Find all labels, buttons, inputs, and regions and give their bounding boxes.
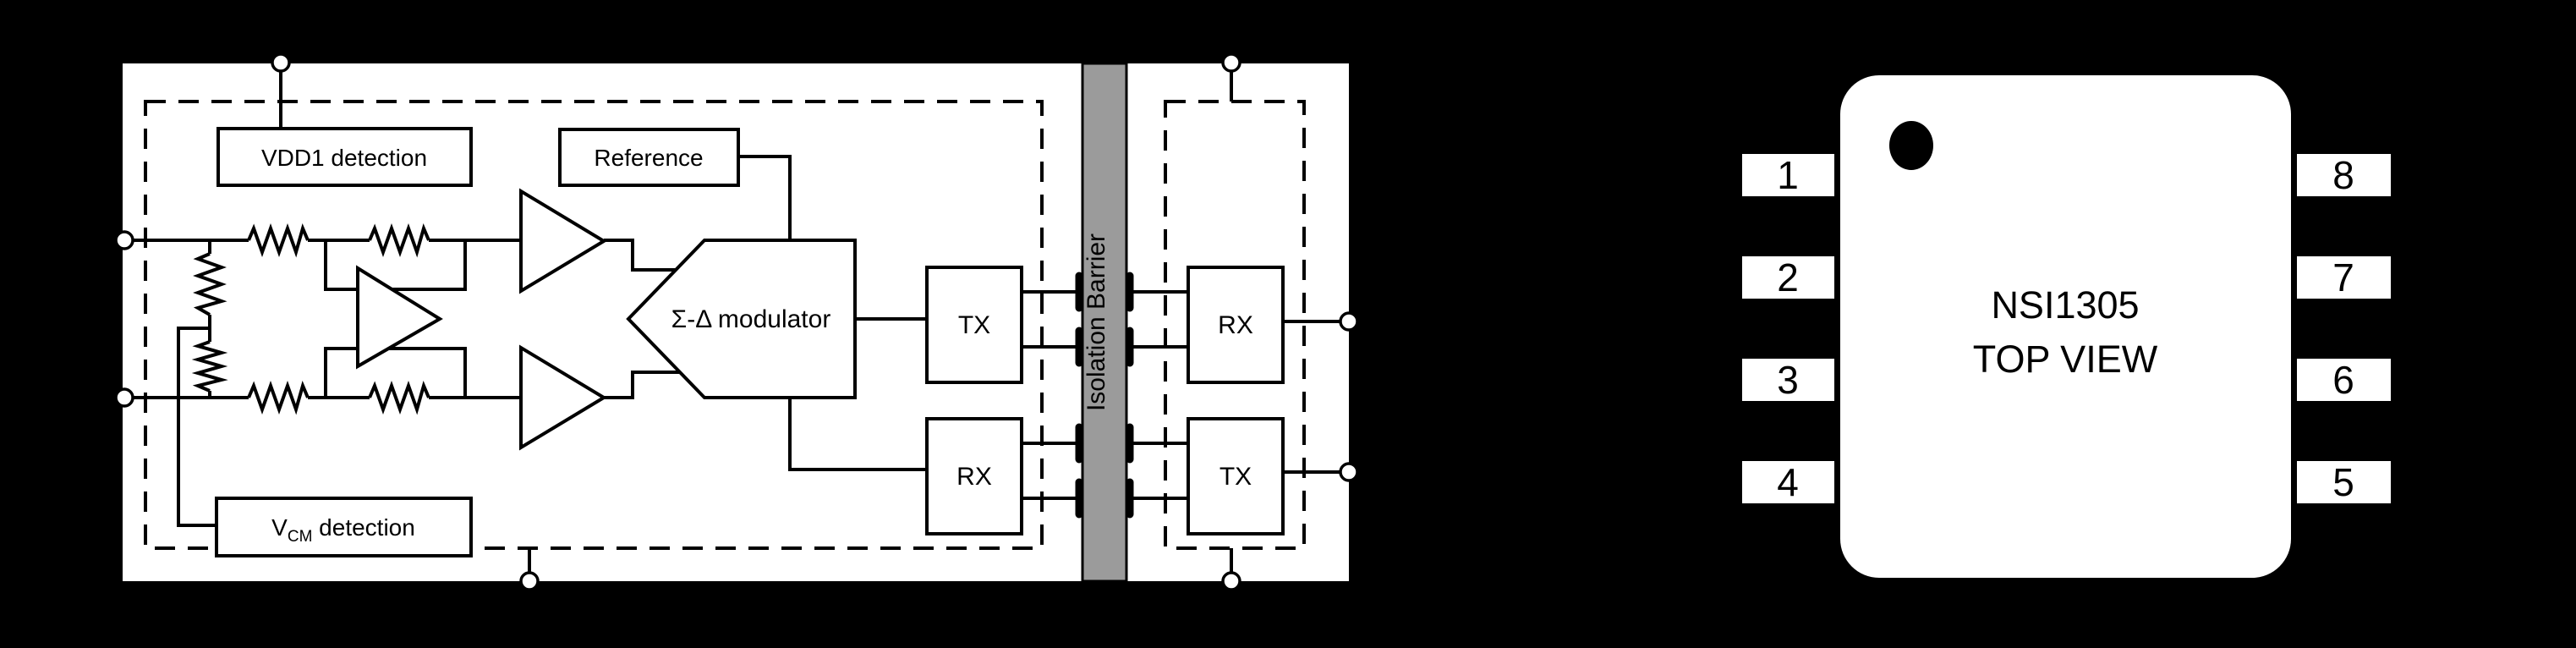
pin1-indicator-dot — [1889, 121, 1933, 170]
figure-canvas: VDD1 detection Reference VCM detection Σ… — [0, 0, 2576, 648]
pin-label-3: 3 — [1777, 358, 1799, 402]
tx-right-label: TX — [1219, 463, 1252, 491]
pin-label-7: 7 — [2332, 255, 2354, 299]
pin-label-1: 1 — [1777, 153, 1799, 197]
terminal-bottom-left — [521, 573, 538, 590]
reference-label: Reference — [594, 145, 703, 171]
terminal-output-top — [1340, 313, 1357, 330]
terminal-input-negative — [116, 389, 133, 406]
pin-label-4: 4 — [1777, 460, 1799, 504]
rx-right-label: RX — [1218, 311, 1253, 339]
terminal-output-bottom — [1340, 464, 1357, 481]
terminal-input-positive — [116, 232, 133, 249]
terminal-top-right — [1223, 54, 1240, 71]
chip-pins-right: 8 7 6 5 — [2297, 153, 2391, 504]
isolation-barrier-label: Isolation Barrier — [1082, 233, 1110, 411]
pin-label-6: 6 — [2332, 358, 2354, 402]
vdd1-detection-label: VDD1 detection — [261, 145, 427, 171]
terminal-top-left — [272, 54, 289, 71]
pin-label-8: 8 — [2332, 153, 2354, 197]
chip-pins-left: 1 2 3 4 — [1742, 153, 1834, 504]
pin-label-2: 2 — [1777, 255, 1799, 299]
tx-left-label: TX — [958, 311, 990, 339]
pin-label-5: 5 — [2332, 460, 2354, 504]
sigma-delta-modulator-label: Σ-Δ modulator — [671, 305, 831, 333]
isolation-barrier: Isolation Barrier — [1079, 63, 1130, 581]
chip-part-number: NSI1305 — [1991, 283, 2139, 327]
diagram-svg: VDD1 detection Reference VCM detection Σ… — [0, 0, 2576, 648]
vcm-rest: detection — [312, 514, 414, 541]
rx-left-label: RX — [956, 463, 992, 491]
vcm-v: V — [271, 514, 288, 541]
terminal-bottom-right — [1223, 573, 1240, 590]
chip-package: NSI1305 TOP VIEW 1 2 3 4 8 7 6 5 — [1742, 75, 2391, 578]
vcm-sub: CM — [288, 528, 313, 546]
chip-view-label: TOP VIEW — [1973, 338, 2158, 381]
block-diagram: VDD1 detection Reference VCM detection Σ… — [116, 54, 1357, 590]
